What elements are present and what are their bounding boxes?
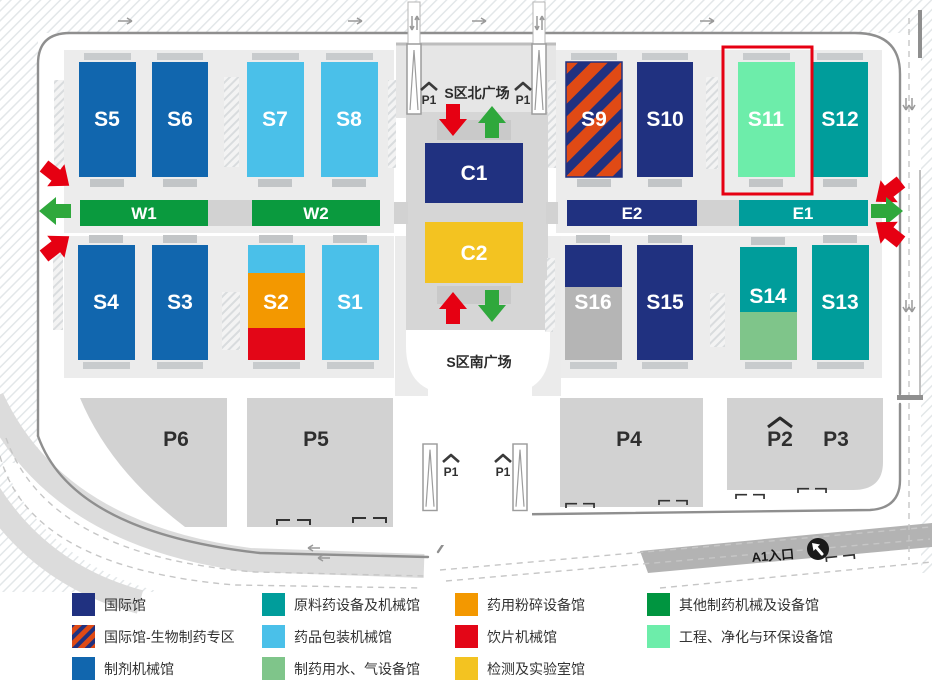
hall-s4[interactable]: S4 — [78, 235, 135, 369]
svg-text:其他制药机械及设备馆: 其他制药机械及设备馆 — [679, 597, 819, 613]
svg-text:S8: S8 — [336, 108, 362, 131]
legend-item-preparation-machinery: 制剂机械馆 — [72, 657, 174, 680]
legend-swatch-striped — [72, 625, 95, 648]
svg-text:国际馆: 国际馆 — [104, 597, 146, 613]
svg-text:S7: S7 — [262, 108, 288, 131]
hall-s15[interactable]: S15 — [637, 235, 693, 369]
legend-swatch — [262, 657, 285, 680]
legend-swatch — [72, 657, 95, 680]
legend-swatch — [72, 593, 95, 616]
hall-s5[interactable]: S5 — [79, 53, 136, 187]
legend-item-packaging-machinery: 药品包装机械馆 — [262, 625, 392, 648]
parking-p2-p3 — [727, 398, 883, 490]
legend-item-decoction-machinery: 饮片机械馆 — [455, 625, 557, 648]
hall-w1[interactable]: W1 — [80, 200, 208, 226]
svg-text:S10: S10 — [646, 108, 683, 131]
svg-text:S2: S2 — [263, 291, 289, 314]
svg-text:S16: S16 — [574, 291, 611, 314]
svg-text:检测及实验室馆: 检测及实验室馆 — [487, 661, 585, 677]
legend-swatch — [455, 657, 478, 680]
north-gate-road-left — [408, 2, 420, 44]
road-junction — [897, 395, 923, 400]
svg-text:制药用水、气设备馆: 制药用水、气设备馆 — [294, 661, 420, 677]
svg-text:S13: S13 — [821, 291, 858, 314]
svg-text:制剂机械馆: 制剂机械馆 — [104, 661, 174, 677]
p4-label: P4 — [616, 428, 642, 451]
hall-c2[interactable]: C2 — [425, 222, 523, 283]
hall-s6[interactable]: S6 — [152, 53, 208, 187]
connector-w1-w2 — [208, 200, 252, 226]
north-gate-road-right — [533, 2, 545, 44]
p6-label: P6 — [163, 428, 189, 451]
legend-swatch — [455, 625, 478, 648]
svg-text:国际馆-生物制药专区: 国际馆-生物制药专区 — [104, 629, 235, 645]
north-plaza-label: S区北广场 — [444, 85, 509, 101]
hall-s8[interactable]: S8 — [321, 53, 378, 187]
hall-e2[interactable]: E2 — [567, 200, 697, 226]
legend-swatch — [647, 625, 670, 648]
legend-swatch — [262, 593, 285, 616]
svg-text:C1: C1 — [461, 162, 488, 185]
legend-swatch — [262, 625, 285, 648]
gate-tower-nw — [407, 44, 421, 114]
svg-text:药品包装机械馆: 药品包装机械馆 — [294, 629, 392, 645]
svg-text:E2: E2 — [622, 204, 643, 223]
gate-tower-ne — [532, 44, 546, 114]
svg-text:S12: S12 — [821, 108, 858, 131]
svg-text:原料药设备及机械馆: 原料药设备及机械馆 — [294, 597, 420, 613]
hall-s12[interactable]: S12 — [812, 53, 868, 187]
svg-text:S3: S3 — [167, 291, 193, 314]
svg-text:S9: S9 — [581, 108, 607, 131]
hall-s13[interactable]: S13 — [812, 235, 869, 369]
svg-text:W2: W2 — [303, 204, 329, 223]
hall-s7[interactable]: S7 — [247, 53, 304, 187]
connector-e2-e1 — [697, 200, 739, 226]
svg-text:S1: S1 — [337, 291, 363, 314]
hall-s9[interactable]: S9 — [566, 53, 622, 187]
legend-swatch — [647, 593, 670, 616]
svg-text:饮片机械馆: 饮片机械馆 — [487, 629, 557, 645]
svg-text:C2: C2 — [461, 242, 488, 265]
s2-segment-packaging — [248, 245, 305, 273]
connector-c-e2 — [546, 202, 558, 224]
hall-s1[interactable]: S1 — [322, 235, 379, 369]
svg-text:S11: S11 — [748, 108, 785, 131]
hall-s2[interactable]: S2 — [248, 235, 305, 369]
p5-label: P5 — [303, 428, 329, 451]
legend-item-international: 国际馆 — [72, 593, 146, 616]
south-plaza-label: S区南广场 — [446, 354, 511, 370]
gate-tower-south-right — [513, 444, 527, 511]
s14-segment-water-gas — [740, 312, 797, 360]
hall-s16[interactable]: S16 — [565, 235, 622, 369]
hall-w2[interactable]: W2 — [252, 200, 380, 226]
p2-label: P2 — [767, 428, 793, 451]
hall-c1[interactable]: C1 — [425, 143, 523, 203]
svg-text:E1: E1 — [793, 204, 814, 223]
svg-text:S5: S5 — [94, 108, 120, 131]
hatch-left — [0, 33, 38, 463]
svg-text:W1: W1 — [131, 204, 157, 223]
legend-item-crushing-equipment: 药用粉碎设备馆 — [455, 593, 585, 616]
parking-p5 — [247, 398, 393, 527]
hall-s11[interactable]: S11 — [738, 53, 795, 187]
legend-item-testing-lab: 检测及实验室馆 — [455, 657, 585, 680]
svg-text:S6: S6 — [167, 108, 193, 131]
connector-w2-c — [394, 202, 408, 224]
p3-label: P3 — [823, 428, 849, 451]
s16-segment-international — [565, 245, 622, 287]
svg-text:药用粉碎设备馆: 药用粉碎设备馆 — [487, 597, 585, 613]
parking-p4 — [560, 398, 703, 507]
venue-map: P1 — [0, 0, 932, 696]
svg-text:工程、净化与环保设备馆: 工程、净化与环保设备馆 — [679, 629, 833, 645]
hatch-top — [0, 0, 932, 33]
hall-s10[interactable]: S10 — [637, 53, 693, 187]
hatch-right — [921, 33, 932, 573]
svg-text:S15: S15 — [646, 291, 684, 314]
hall-e1[interactable]: E1 — [739, 200, 868, 226]
hall-s14[interactable]: S14 — [740, 237, 797, 369]
gate-tower-south-left — [423, 444, 437, 511]
s2-segment-decoction — [248, 328, 305, 360]
svg-text:S14: S14 — [749, 285, 787, 308]
a1-entrance-icon — [807, 538, 829, 560]
hall-s3[interactable]: S3 — [152, 235, 208, 369]
svg-text:S4: S4 — [93, 291, 119, 314]
road-stub-topright — [918, 10, 922, 58]
legend-swatch — [455, 593, 478, 616]
